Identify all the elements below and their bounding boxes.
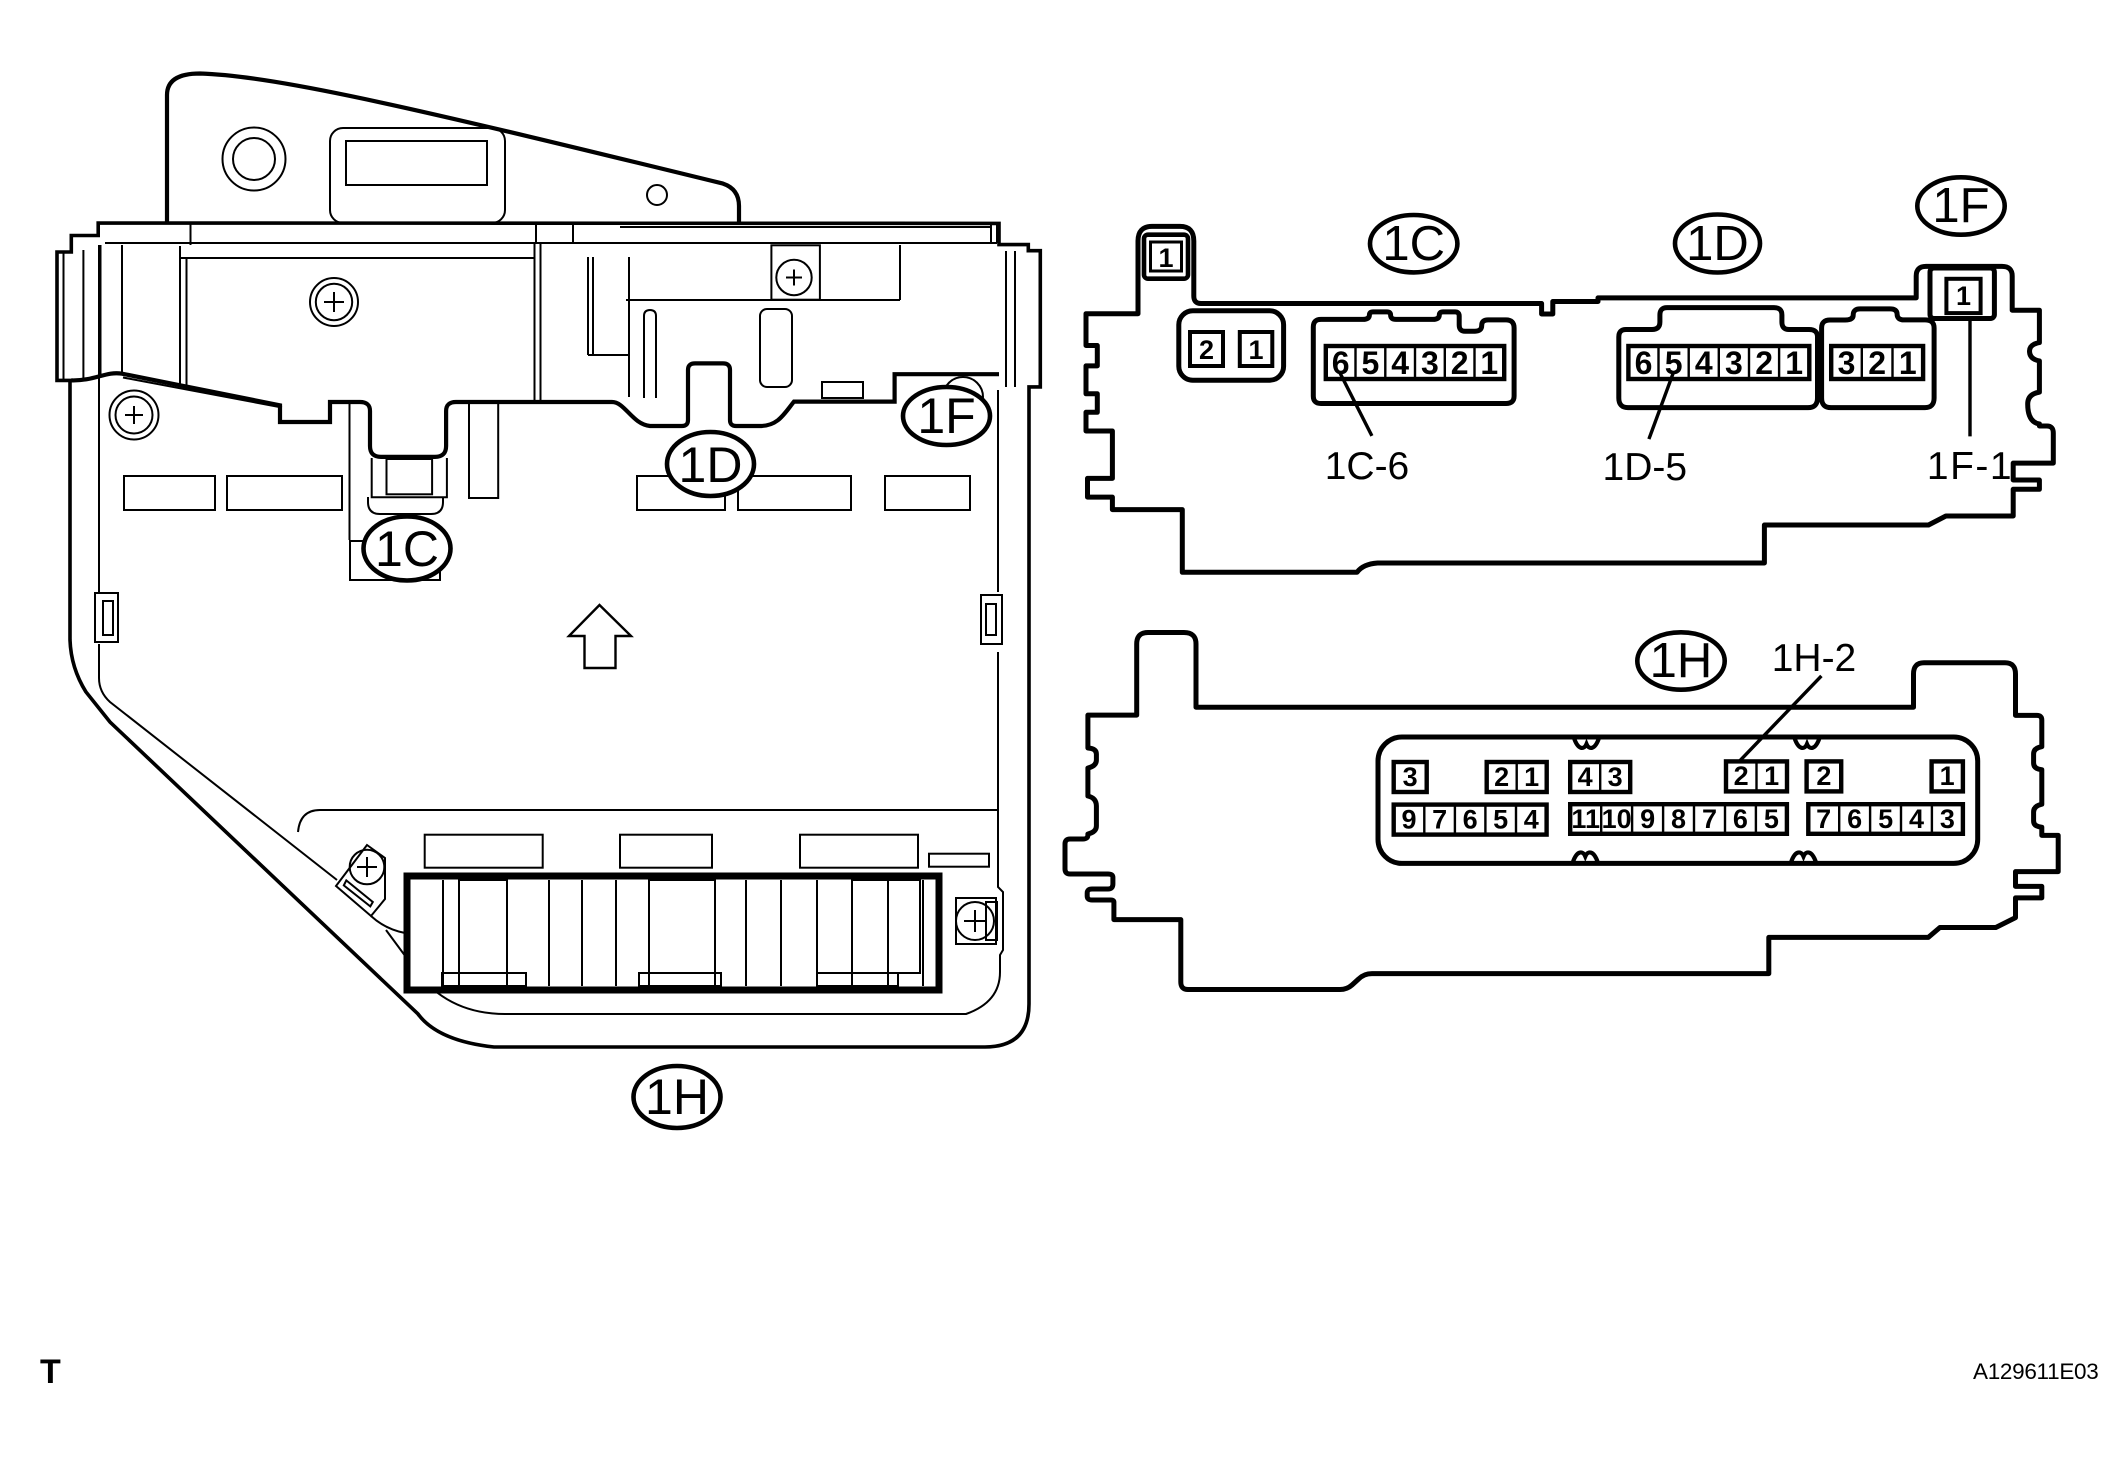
svg-text:1C-6: 1C-6 xyxy=(1325,445,1410,488)
svg-text:1D: 1D xyxy=(1686,217,1749,271)
svg-text:8: 8 xyxy=(1671,804,1686,834)
svg-text:1: 1 xyxy=(1524,762,1539,792)
svg-text:3: 3 xyxy=(1608,762,1623,792)
svg-text:2: 2 xyxy=(1494,762,1509,792)
svg-text:1D: 1D xyxy=(679,437,743,493)
svg-text:1F-1: 1F-1 xyxy=(1927,445,2013,488)
svg-text:2: 2 xyxy=(1868,345,1886,381)
svg-text:5: 5 xyxy=(1493,805,1508,835)
svg-text:9: 9 xyxy=(1640,804,1655,834)
svg-text:4: 4 xyxy=(1578,762,1593,792)
svg-text:1: 1 xyxy=(1158,243,1173,273)
svg-text:7: 7 xyxy=(1432,805,1447,835)
svg-text:1H: 1H xyxy=(645,1069,709,1125)
svg-text:3: 3 xyxy=(1940,804,1955,834)
svg-text:3: 3 xyxy=(1725,345,1743,381)
svg-text:1H-2: 1H-2 xyxy=(1772,637,1857,680)
svg-text:1F: 1F xyxy=(1932,179,1989,233)
svg-text:T: T xyxy=(40,1353,61,1391)
svg-text:2: 2 xyxy=(1755,345,1773,381)
svg-text:3: 3 xyxy=(1421,345,1439,381)
svg-text:3: 3 xyxy=(1838,345,1856,381)
svg-text:6: 6 xyxy=(1463,805,1478,835)
svg-text:7: 7 xyxy=(1816,804,1831,834)
svg-text:1F: 1F xyxy=(917,388,975,444)
svg-text:10: 10 xyxy=(1602,804,1632,834)
svg-text:4: 4 xyxy=(1909,804,1924,834)
svg-text:9: 9 xyxy=(1401,805,1416,835)
svg-text:4: 4 xyxy=(1524,805,1539,835)
svg-text:6: 6 xyxy=(1847,804,1862,834)
svg-text:1: 1 xyxy=(1940,761,1955,791)
svg-text:A129611E03: A129611E03 xyxy=(1973,1359,2098,1384)
svg-text:2: 2 xyxy=(1734,761,1749,791)
svg-text:7: 7 xyxy=(1702,804,1717,834)
svg-text:1: 1 xyxy=(1785,345,1803,381)
svg-text:1C: 1C xyxy=(375,521,439,577)
svg-text:3: 3 xyxy=(1403,762,1418,792)
svg-text:1: 1 xyxy=(1248,335,1263,365)
svg-text:5: 5 xyxy=(1764,804,1779,834)
svg-text:1H: 1H xyxy=(1650,634,1713,688)
svg-text:1: 1 xyxy=(1956,281,1971,311)
svg-text:4: 4 xyxy=(1695,345,1713,381)
svg-text:1: 1 xyxy=(1764,761,1779,791)
svg-text:1D-5: 1D-5 xyxy=(1603,446,1688,489)
svg-text:5: 5 xyxy=(1362,345,1380,381)
svg-text:2: 2 xyxy=(1451,345,1469,381)
svg-text:2: 2 xyxy=(1816,761,1831,791)
svg-text:6: 6 xyxy=(1733,804,1748,834)
svg-text:1: 1 xyxy=(1480,345,1498,381)
svg-text:6: 6 xyxy=(1635,345,1653,381)
svg-text:1: 1 xyxy=(1899,345,1917,381)
svg-text:2: 2 xyxy=(1199,335,1214,365)
svg-text:11: 11 xyxy=(1571,804,1600,834)
svg-text:1C: 1C xyxy=(1382,217,1445,271)
svg-text:4: 4 xyxy=(1391,345,1409,381)
svg-text:5: 5 xyxy=(1878,804,1893,834)
